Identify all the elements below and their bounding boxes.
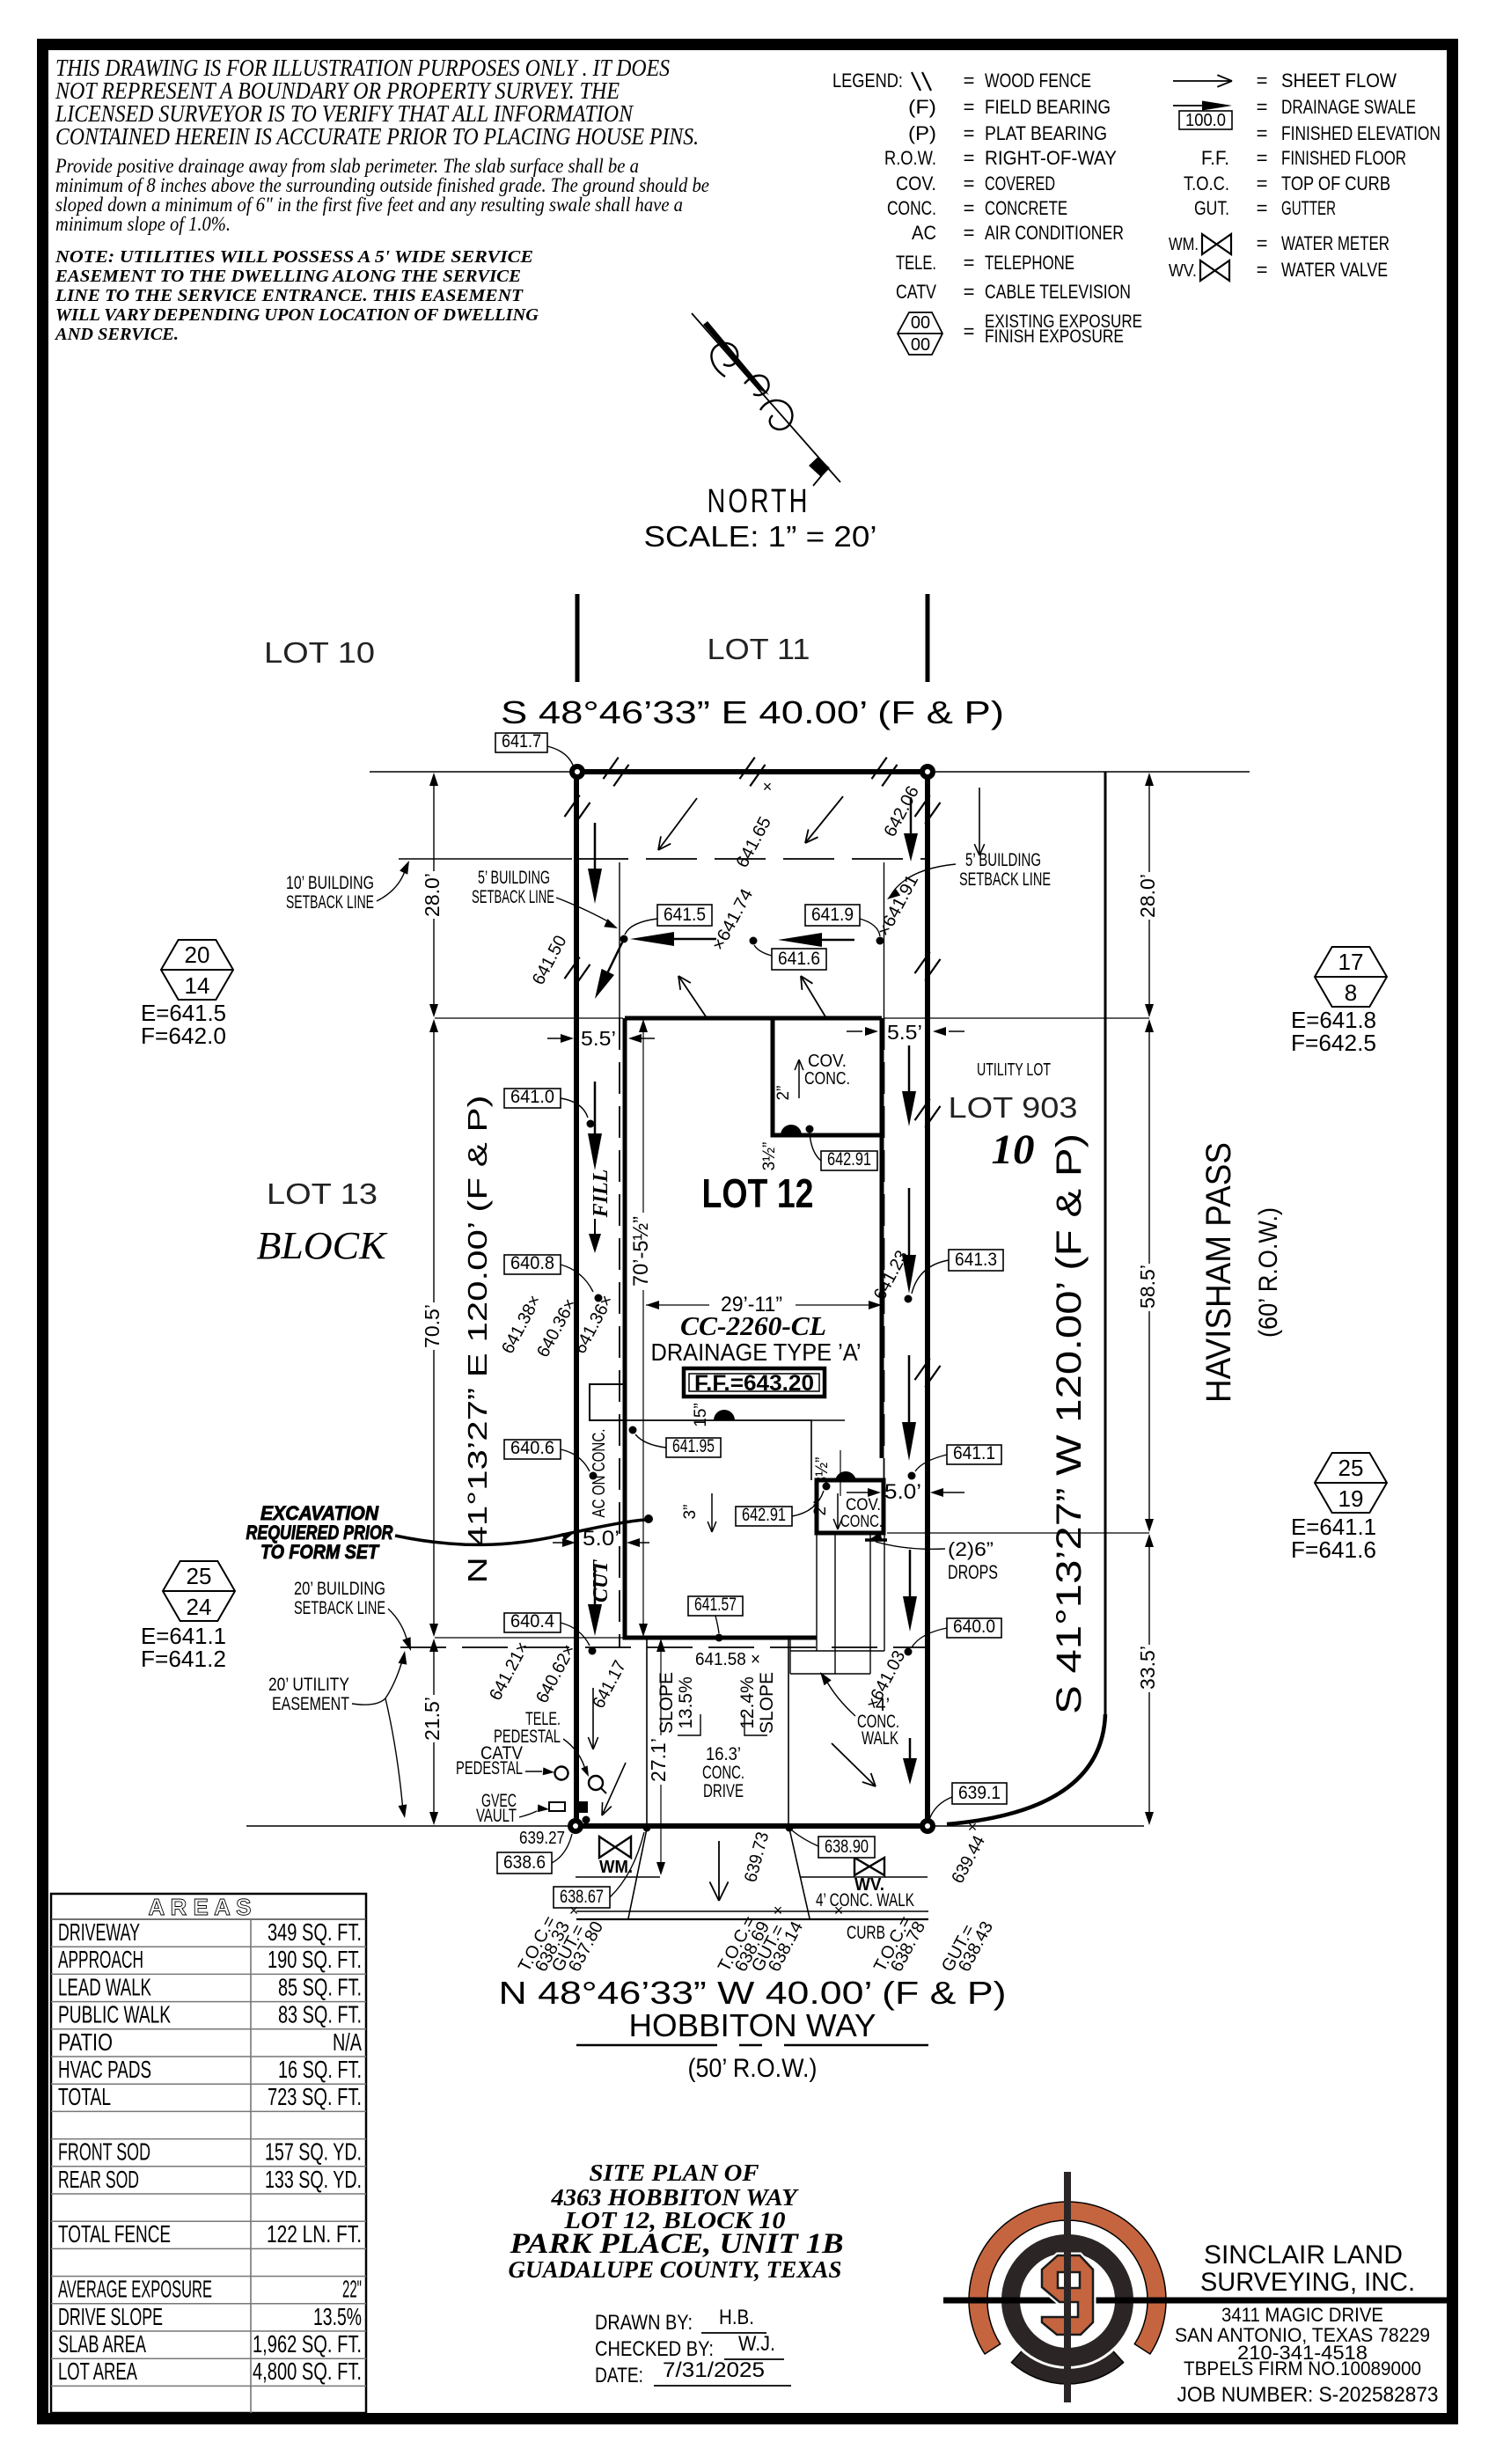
svg-text:20’ BUILDING: 20’ BUILDING — [294, 1579, 385, 1599]
svg-text:DRAWN BY:: DRAWN BY: — [595, 2311, 693, 2335]
svg-text:=: = — [964, 172, 975, 194]
svg-text:638.67: 638.67 — [560, 1887, 604, 1907]
svg-text:HOBBITON WAY: HOBBITON WAY — [629, 2007, 876, 2043]
svg-text:S 48°46’33” E 40.00’ (F & P: S 48°46’33” E 40.00’ (F & P) — [501, 694, 1004, 730]
svg-text:CATV: CATV — [896, 281, 936, 303]
svg-text:LEAD WALK: LEAD WALK — [58, 1973, 151, 2000]
svg-text:641.6: 641.6 — [778, 949, 820, 969]
svg-text:WATER VALVE: WATER VALVE — [1281, 259, 1388, 281]
svg-text:SURVEYING, INC.: SURVEYING, INC. — [1200, 2268, 1415, 2297]
svg-text:SINCLAIR LAND: SINCLAIR LAND — [1204, 2240, 1403, 2270]
svg-text:HAVISHAM PASS: HAVISHAM PASS — [1199, 1142, 1238, 1403]
svg-text:TELE.: TELE. — [896, 252, 936, 274]
svg-text:DRIVE SLOPE: DRIVE SLOPE — [58, 2303, 163, 2330]
svg-text:28.0’: 28.0’ — [1136, 874, 1159, 918]
svg-text:=: = — [1257, 70, 1268, 92]
svg-text:CHECKED BY:: CHECKED BY: — [595, 2337, 714, 2361]
svg-text:=: = — [964, 70, 975, 92]
svg-text:642.91: 642.91 — [742, 1505, 786, 1525]
svg-text:TBPELS FIRM NO.10089000: TBPELS FIRM NO.10089000 — [1184, 2358, 1421, 2380]
svg-text:F=641.6: F=641.6 — [1291, 1536, 1376, 1563]
svg-text:PEDESTAL: PEDESTAL — [456, 1758, 523, 1778]
svg-text:157 SQ. YD.: 157 SQ. YD. — [265, 2138, 362, 2166]
svg-text:FINISHED ELEVATION: FINISHED ELEVATION — [1281, 122, 1441, 144]
svg-text:F.F.=643.20: F.F.=643.20 — [694, 1371, 814, 1396]
svg-text:EASEMENT: EASEMENT — [272, 1694, 349, 1714]
svg-text:PATIO: PATIO — [58, 2028, 113, 2056]
svg-text:minimum slope of 1.0%.: minimum slope of 1.0%. — [55, 213, 231, 235]
svg-text:641.95: 641.95 — [672, 1436, 715, 1456]
svg-text:FINISH EXPOSURE: FINISH EXPOSURE — [985, 326, 1124, 347]
svg-text:28.0’: 28.0’ — [421, 873, 444, 917]
svg-text:COV.: COV. — [808, 1052, 847, 1071]
svg-text:349 SQ. FT.: 349 SQ. FT. — [268, 1918, 362, 1946]
svg-text:WILL VARY DEPENDING UPON LOCAT: WILL VARY DEPENDING UPON LOCATION OF DWE… — [55, 305, 539, 325]
svg-text:16 SQ. FT.: 16 SQ. FT. — [278, 2056, 362, 2083]
svg-text:=: = — [1257, 259, 1268, 281]
svg-text:AND SERVICE.: AND SERVICE. — [54, 325, 179, 344]
svg-text:LOT 13: LOT 13 — [267, 1177, 378, 1210]
svg-text:2”: 2” — [774, 1086, 793, 1101]
svg-text:PUBLIC WALK: PUBLIC WALK — [58, 2001, 171, 2028]
svg-text:TO FORM SET: TO FORM SET — [260, 1541, 379, 1563]
svg-text:639.1: 639.1 — [958, 1783, 1001, 1803]
svg-text:SETBACK LINE: SETBACK LINE — [286, 892, 374, 913]
svg-text:×: × — [569, 1902, 579, 1919]
svg-text:APPROACH: APPROACH — [58, 1946, 143, 1973]
svg-text:10: 10 — [992, 1126, 1035, 1173]
svg-text:4’ CONC. WALK: 4’ CONC. WALK — [816, 1890, 914, 1910]
svg-text:FINISHED FLOOR: FINISHED FLOOR — [1281, 147, 1406, 169]
svg-text:F=641.2: F=641.2 — [141, 1646, 226, 1672]
svg-text:5.5’: 5.5’ — [581, 1027, 616, 1050]
svg-text:BLOCK: BLOCK — [257, 1224, 389, 1267]
svg-text:REAR SOD: REAR SOD — [58, 2166, 139, 2193]
svg-text:70’-5½”: 70’-5½” — [629, 1216, 653, 1287]
svg-text:×: × — [774, 1902, 783, 1919]
svg-text:DRAINAGE TYPE ’A’: DRAINAGE TYPE ’A’ — [651, 1338, 862, 1366]
svg-text:3½”: 3½” — [813, 1457, 832, 1486]
svg-text:TOTAL: TOTAL — [58, 2083, 111, 2110]
svg-text:COV.: COV. — [846, 1496, 881, 1514]
svg-text:13.5%: 13.5% — [313, 2303, 362, 2330]
svg-text:SHEET FLOW: SHEET FLOW — [1281, 70, 1397, 92]
svg-text:SETBACK LINE: SETBACK LINE — [294, 1598, 385, 1618]
svg-text:T.O.C.: T.O.C. — [1184, 172, 1229, 194]
svg-text:641.0: 641.0 — [510, 1087, 554, 1107]
svg-text:LINE TO THE SERVICE ENTRANCE.: LINE TO THE SERVICE ENTRANCE. THIS EASEM… — [55, 286, 524, 305]
svg-text:CONC.: CONC. — [887, 197, 936, 219]
svg-text:SITE PLAN OF: SITE PLAN OF — [590, 2160, 759, 2186]
svg-text:N/A: N/A — [333, 2028, 362, 2056]
svg-text:=: = — [1257, 122, 1268, 144]
svg-text:A R E A S: A R E A S — [148, 1894, 251, 1920]
svg-text:=: = — [1257, 232, 1268, 254]
svg-text:=: = — [1257, 147, 1268, 169]
svg-text:3½”: 3½” — [760, 1142, 779, 1171]
svg-text:640.4: 640.4 — [510, 1611, 554, 1632]
svg-text:CUT: CUT — [590, 1559, 612, 1602]
svg-text:CONTAINED HEREIN IS ACCURATE P: CONTAINED HEREIN IS ACCURATE PRIOR TO PL… — [55, 123, 699, 150]
svg-text:UTILITY LOT: UTILITY LOT — [977, 1060, 1051, 1080]
svg-text:22": 22" — [342, 2276, 362, 2303]
svg-text:638.90: 638.90 — [825, 1837, 869, 1857]
svg-text:122 LN. FT.: 122 LN. FT. — [267, 2220, 362, 2248]
svg-text:(50’ R.O.W.): (50’ R.O.W.) — [688, 2054, 818, 2083]
svg-text:CONC.: CONC. — [804, 1069, 850, 1089]
svg-text:DRIVE: DRIVE — [703, 1781, 744, 1801]
svg-text:=: = — [964, 320, 975, 342]
svg-text:AVERAGE EXPOSURE: AVERAGE EXPOSURE — [58, 2276, 212, 2303]
svg-text:PARK PLACE, UNIT 1B: PARK PLACE, UNIT 1B — [509, 2228, 843, 2260]
svg-text:25: 25 — [1338, 1455, 1364, 1481]
svg-text:2”: 2” — [811, 1501, 830, 1516]
svg-text:R.O.W.: R.O.W. — [884, 147, 936, 169]
svg-text:=: = — [964, 222, 975, 244]
svg-text:640.0: 640.0 — [953, 1617, 995, 1637]
svg-text:641.9: 641.9 — [811, 905, 854, 925]
svg-text:640.6: 640.6 — [510, 1438, 554, 1458]
svg-text:=: = — [964, 252, 975, 274]
svg-text:TOTAL FENCE: TOTAL FENCE — [58, 2220, 171, 2248]
svg-text:=: = — [1257, 197, 1268, 219]
svg-text:=: = — [1257, 96, 1268, 118]
svg-text:SCALE: 1” = 20’: SCALE: 1” = 20’ — [644, 520, 877, 553]
svg-text:24: 24 — [187, 1594, 212, 1620]
svg-text:COV.: COV. — [896, 172, 936, 194]
svg-text:HVAC PADS: HVAC PADS — [58, 2056, 151, 2083]
svg-text:DROPS: DROPS — [948, 1561, 998, 1583]
svg-text:8: 8 — [1345, 979, 1357, 1006]
svg-text:LOT 11: LOT 11 — [708, 633, 810, 665]
svg-text:TELEPHONE: TELEPHONE — [985, 252, 1074, 274]
svg-text:=: = — [964, 281, 975, 303]
svg-text:W.J.: W.J. — [738, 2332, 775, 2356]
svg-text:14: 14 — [185, 972, 210, 999]
svg-text:CURB: CURB — [847, 1923, 885, 1943]
svg-text:×: × — [968, 1818, 978, 1836]
svg-text:SLOPE: SLOPE — [656, 1672, 677, 1734]
svg-text:00: 00 — [911, 335, 930, 355]
svg-text:133 SQ. YD.: 133 SQ. YD. — [265, 2166, 362, 2193]
svg-text:N 41°13’27” E 120.00’ (F &: N 41°13’27” E 120.00’ (F & P) — [462, 1096, 493, 1584]
svg-text:VAULT: VAULT — [476, 1806, 517, 1826]
svg-text:(F): (F) — [908, 96, 936, 118]
svg-text:=: = — [964, 122, 975, 144]
svg-text:00: 00 — [911, 313, 930, 333]
svg-text:WALK: WALK — [862, 1728, 898, 1749]
svg-text:LEGEND:: LEGEND: — [832, 70, 903, 92]
svg-text:638.6: 638.6 — [503, 1852, 546, 1873]
svg-text:LOT 903: LOT 903 — [949, 1091, 1078, 1124]
svg-text:19: 19 — [1338, 1485, 1364, 1512]
svg-text:190 SQ. FT.: 190 SQ. FT. — [268, 1946, 362, 1973]
svg-text:LOT 10: LOT 10 — [264, 636, 375, 669]
svg-text:83 SQ. FT.: 83 SQ. FT. — [278, 2001, 362, 2028]
svg-text:JOB NUMBER: S-202582873: JOB NUMBER: S-202582873 — [1177, 2383, 1439, 2407]
svg-text:FIELD BEARING: FIELD BEARING — [985, 96, 1111, 118]
svg-text:N 48°46’33” W 40.00’ (F & P: N 48°46’33” W 40.00’ (F & P) — [499, 1975, 1007, 2011]
svg-text:WV.: WV. — [1169, 261, 1197, 281]
svg-text:=: = — [964, 197, 975, 219]
svg-text:20: 20 — [185, 942, 210, 968]
svg-text:3”: 3” — [681, 1505, 700, 1520]
svg-text:LOT 12: LOT 12 — [702, 1170, 814, 1216]
svg-text:NORTH: NORTH — [708, 483, 810, 520]
svg-text:15”: 15” — [692, 1403, 710, 1426]
svg-text:21.5’: 21.5’ — [421, 1697, 444, 1741]
svg-text:NOTE: UTILITIES WILL POSSESS A: NOTE: UTILITIES WILL POSSESS A 5' WIDE S… — [55, 247, 533, 267]
svg-text:29’-11”: 29’-11” — [721, 1293, 782, 1316]
svg-text:1,962 SQ. FT.: 1,962 SQ. FT. — [253, 2330, 362, 2358]
svg-text:(2)6”: (2)6” — [948, 1538, 994, 1560]
svg-text:27.1’: 27.1’ — [647, 1738, 670, 1782]
svg-text:723 SQ. FT.: 723 SQ. FT. — [268, 2083, 362, 2110]
svg-text:SETBACK LINE: SETBACK LINE — [959, 869, 1051, 890]
svg-text:(P): (P) — [908, 122, 936, 144]
svg-text:DATE:: DATE: — [595, 2364, 643, 2387]
svg-text:33.5’: 33.5’ — [1136, 1646, 1159, 1690]
svg-text:20’ UTILITY: 20’ UTILITY — [268, 1675, 349, 1695]
svg-text:7/31/2025: 7/31/2025 — [663, 2358, 765, 2382]
svg-text:4,800 SQ. FT.: 4,800 SQ. FT. — [253, 2358, 362, 2385]
svg-text:5’ BUILDING: 5’ BUILDING — [965, 850, 1041, 870]
svg-text:641.3: 641.3 — [955, 1250, 997, 1270]
svg-text:(60’ R.O.W.): (60’ R.O.W.) — [1254, 1207, 1283, 1338]
svg-text:5’ BUILDING: 5’ BUILDING — [478, 868, 550, 888]
svg-text:GUADALUPE COUNTY, TEXAS: GUADALUPE COUNTY, TEXAS — [509, 2256, 842, 2283]
svg-text:5.0’: 5.0’ — [884, 1480, 921, 1504]
svg-text:640.8: 640.8 — [510, 1253, 554, 1273]
svg-text:COVERED: COVERED — [985, 172, 1055, 194]
svg-text:PLAT BEARING: PLAT BEARING — [985, 122, 1107, 144]
svg-text:58.5’: 58.5’ — [1136, 1265, 1159, 1309]
svg-text:100.0: 100.0 — [1185, 111, 1226, 130]
svg-text:70.5’: 70.5’ — [421, 1304, 444, 1348]
svg-text:WOOD FENCE: WOOD FENCE — [985, 70, 1091, 92]
svg-text:RIGHT-OF-WAY: RIGHT-OF-WAY — [985, 147, 1117, 169]
svg-text:25: 25 — [187, 1563, 212, 1589]
svg-text:F=642.5: F=642.5 — [1291, 1030, 1376, 1056]
svg-text:639.27: 639.27 — [519, 1829, 565, 1848]
svg-text:LOT AREA: LOT AREA — [58, 2358, 137, 2385]
svg-text:FILL: FILL — [590, 1170, 612, 1219]
svg-text:F=642.0: F=642.0 — [141, 1023, 226, 1049]
svg-text:85 SQ. FT.: 85 SQ. FT. — [278, 1973, 362, 2000]
svg-text:WM.: WM. — [1169, 235, 1199, 254]
svg-text:S 41°13’27” W 120.00’ (F &: S 41°13’27” W 120.00’ (F & P) — [1050, 1133, 1089, 1714]
svg-text:642.91: 642.91 — [827, 1149, 871, 1170]
svg-text:DRAINAGE SWALE: DRAINAGE SWALE — [1281, 96, 1416, 118]
svg-text:AIR CONDITIONER: AIR CONDITIONER — [985, 222, 1124, 244]
svg-text:DRIVEWAY: DRIVEWAY — [58, 1918, 140, 1946]
svg-text:EASEMENT TO THE DWELLING ALONG: EASEMENT TO THE DWELLING ALONG THE SERVI… — [55, 267, 521, 286]
svg-text:641.7: 641.7 — [502, 731, 541, 752]
svg-text:H.B.: H.B. — [719, 2306, 754, 2329]
svg-text:×: × — [763, 778, 773, 796]
svg-text:SETBACK LINE: SETBACK LINE — [472, 887, 554, 907]
svg-text:CONCRETE: CONCRETE — [985, 197, 1067, 219]
svg-text:CABLE TELEVISION: CABLE TELEVISION — [985, 281, 1131, 303]
svg-text:CONC.: CONC. — [702, 1763, 744, 1783]
svg-text:13.5%: 13.5% — [676, 1676, 696, 1729]
svg-text:F.F.: F.F. — [1201, 147, 1229, 169]
svg-text:GUT.: GUT. — [1194, 197, 1229, 219]
svg-text:SLAB AREA: SLAB AREA — [58, 2330, 146, 2358]
svg-text:641.5: 641.5 — [664, 905, 706, 925]
svg-text:=: = — [964, 96, 975, 118]
svg-text:WATER METER: WATER METER — [1281, 232, 1390, 254]
svg-text:AC: AC — [912, 222, 936, 244]
svg-text:TOP OF CURB: TOP OF CURB — [1281, 172, 1390, 194]
svg-text:FRONT SOD: FRONT SOD — [58, 2138, 150, 2166]
svg-text:17: 17 — [1338, 949, 1364, 975]
svg-text:641.57: 641.57 — [694, 1595, 737, 1615]
svg-text:=: = — [964, 147, 975, 169]
svg-text:12.4%: 12.4% — [737, 1676, 758, 1729]
svg-text:GUTTER: GUTTER — [1281, 197, 1336, 219]
svg-text:3411 MAGIC DRIVE: 3411 MAGIC DRIVE — [1221, 2304, 1383, 2326]
svg-text:641.58 ×: 641.58 × — [695, 1650, 760, 1669]
svg-text:10’ BUILDING: 10’ BUILDING — [286, 873, 374, 893]
svg-text:CONC.: CONC. — [840, 1513, 883, 1531]
svg-text:SLOPE: SLOPE — [757, 1672, 777, 1734]
svg-text:=: = — [1257, 172, 1268, 194]
svg-text:16.3’: 16.3’ — [706, 1744, 741, 1764]
svg-text:641.1: 641.1 — [953, 1443, 995, 1463]
svg-text:5.5’: 5.5’ — [887, 1021, 922, 1044]
